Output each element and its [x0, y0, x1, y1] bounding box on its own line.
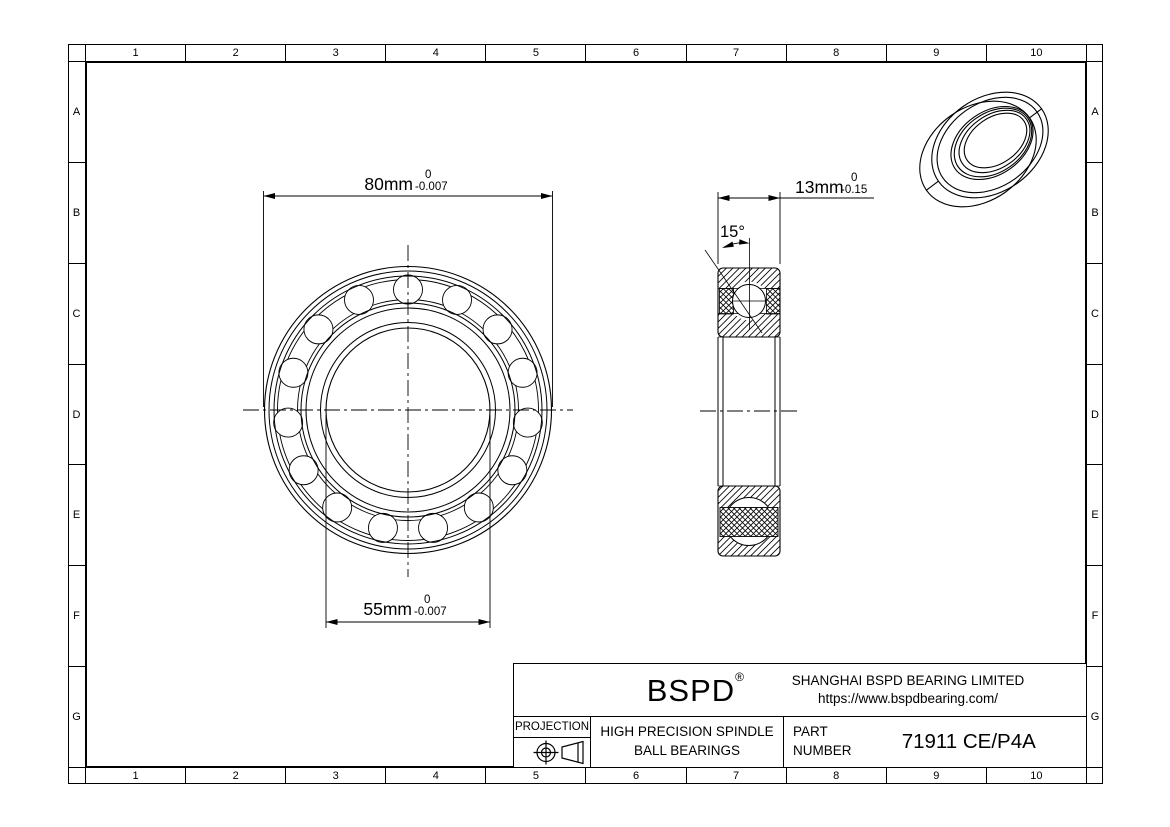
angle-value: 15° — [720, 223, 745, 241]
part-label-line2: NUMBER — [793, 742, 852, 761]
dim-outer-tol-upper: 0 — [425, 169, 431, 181]
ball-pocket — [483, 315, 512, 344]
registered-trademark-symbol: ® — [735, 671, 744, 683]
product-line1: HIGH PRECISION SPINDLE — [600, 723, 773, 742]
dim-width-tol-upper: 0 — [851, 172, 857, 184]
first-angle-projection-icon — [515, 738, 589, 767]
ball-pocket — [368, 513, 397, 542]
part-number-cell: PART NUMBER 71911 CE/P4A — [784, 717, 1086, 767]
dim-bore-tol-upper: 0 — [424, 594, 430, 606]
part-label-line1: PART — [793, 723, 852, 742]
ball-pocket — [279, 358, 308, 387]
title-block: BSPD® SHANGHAI BSPD BEARING LIMITED http… — [513, 663, 1087, 768]
drawing-sheet: 12345678910 12345678910 ABCDEFG ABCDEFG — [0, 0, 1170, 827]
dimension-width: 13mm 0 -0.15 — [718, 172, 874, 264]
company-website: https://www.bspdbearing.com/ — [744, 690, 1072, 708]
dim-bore-tol-lower: -0.007 — [414, 606, 447, 618]
ball-pocket — [419, 513, 448, 542]
company-name: SHANGHAI BSPD BEARING LIMITED — [744, 672, 1072, 690]
ball-pocket — [508, 358, 537, 387]
title-block-header: BSPD® SHANGHAI BSPD BEARING LIMITED http… — [514, 664, 1086, 717]
isometric-view — [899, 70, 1068, 228]
brand-logo: BSPD — [647, 675, 735, 706]
front-view — [243, 245, 573, 577]
dim-bore-main: 55mm — [363, 599, 412, 619]
ball-pocket — [513, 408, 542, 437]
product-line2: BALL BEARINGS — [634, 742, 740, 761]
product-description-cell: HIGH PRECISION SPINDLE BALL BEARINGS — [591, 717, 784, 767]
ball-pocket — [274, 408, 303, 437]
projection-cell: PROJECTION — [514, 717, 591, 767]
ball-pocket — [464, 493, 493, 522]
dim-outer-tol-lower: -0.007 — [415, 181, 448, 193]
part-number-value: 71911 CE/P4A — [852, 730, 1086, 754]
dim-width-main: 13mm — [795, 177, 844, 197]
ball-pocket — [323, 493, 352, 522]
side-view — [700, 268, 798, 556]
dim-width-tol-lower: -0.15 — [841, 184, 867, 196]
dim-outer-main: 80mm — [364, 174, 413, 194]
projection-label: PROJECTION — [514, 717, 590, 738]
ball-pocket — [304, 315, 333, 344]
